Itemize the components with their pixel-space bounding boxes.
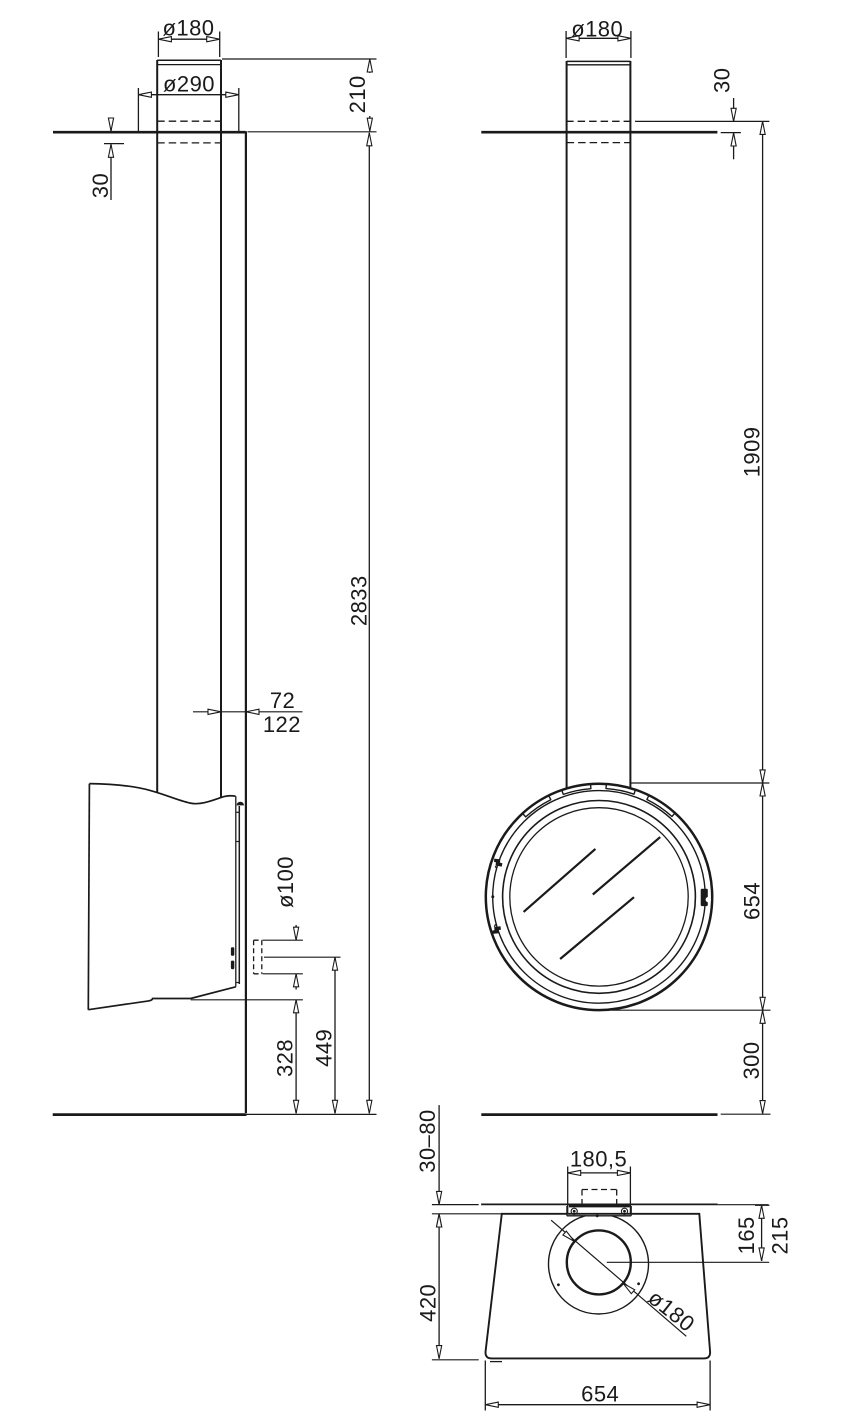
svg-text:449: 449	[312, 1029, 337, 1067]
svg-text:ø290: ø290	[163, 72, 215, 97]
svg-text:30: 30	[709, 68, 734, 93]
svg-text:72: 72	[270, 688, 295, 713]
svg-text:ø100: ø100	[273, 856, 298, 908]
svg-text:210: 210	[345, 75, 370, 113]
svg-text:420: 420	[415, 1284, 440, 1322]
svg-text:300: 300	[739, 1041, 764, 1079]
svg-text:2833: 2833	[346, 575, 371, 626]
svg-text:122: 122	[263, 712, 301, 737]
svg-text:165: 165	[734, 1216, 759, 1254]
svg-text:30: 30	[88, 173, 113, 198]
svg-text:180,5: 180,5	[570, 1147, 627, 1172]
svg-text:1909: 1909	[740, 427, 765, 478]
svg-text:654: 654	[740, 882, 765, 920]
svg-text:30–80: 30–80	[415, 1109, 440, 1172]
svg-text:215: 215	[767, 1216, 792, 1254]
svg-text:654: 654	[581, 1381, 619, 1406]
svg-text:328: 328	[272, 1039, 297, 1077]
